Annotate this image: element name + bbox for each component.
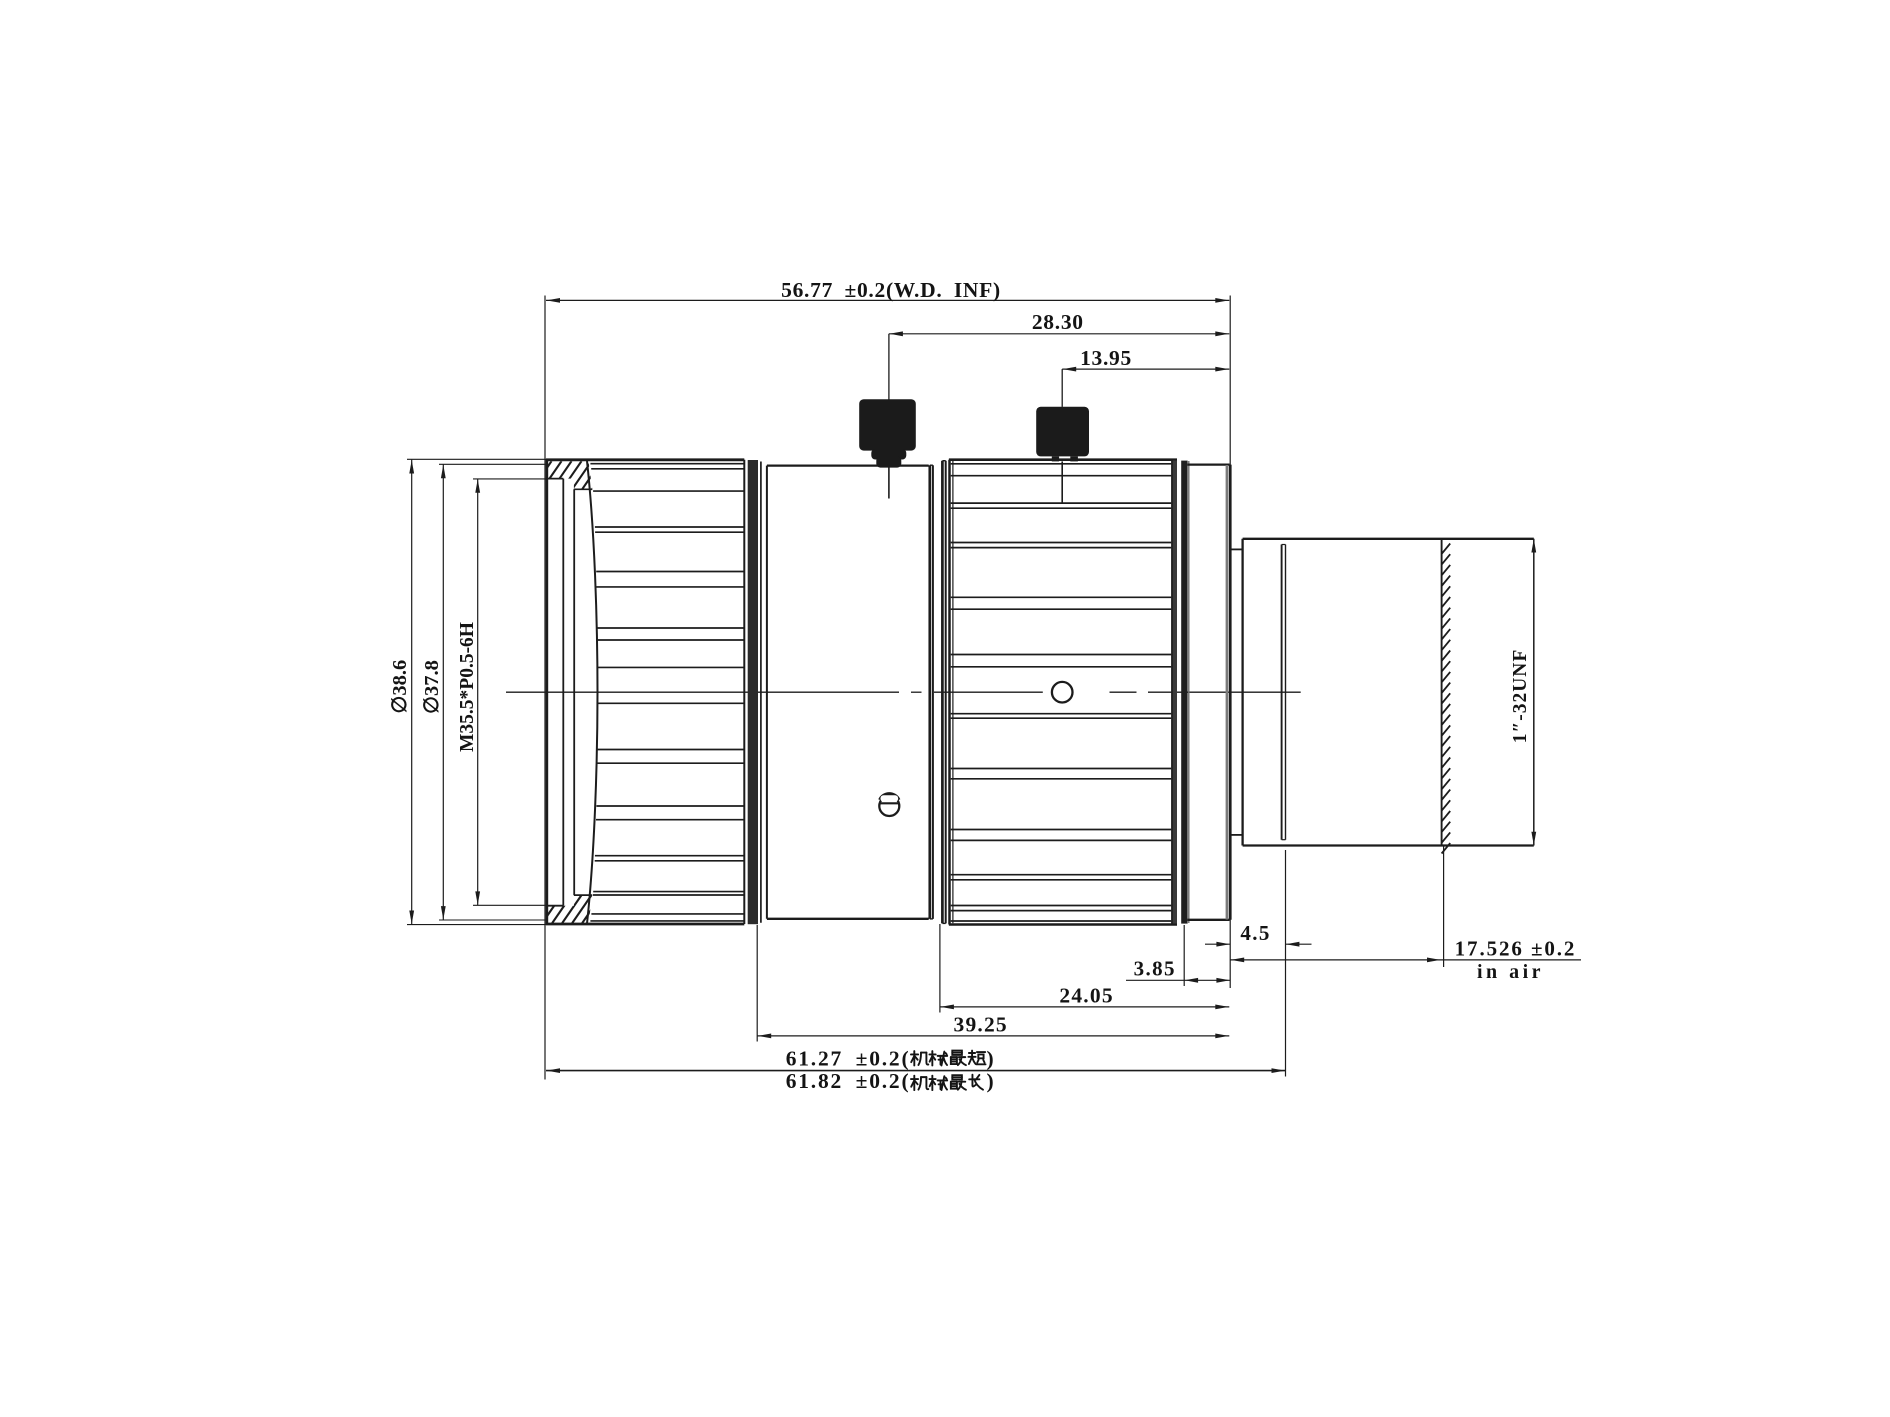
svg-text:∅38.6: ∅38.6: [389, 660, 411, 714]
svg-text:13.95: 13.95: [1080, 346, 1132, 370]
svg-text:3.85: 3.85: [1134, 957, 1176, 981]
svg-text:24.05: 24.05: [1059, 983, 1113, 1007]
svg-text:61.82 ±0.2(: 61.82 ±0.2(: [786, 1069, 911, 1093]
svg-text:4.5: 4.5: [1240, 921, 1270, 945]
svg-text:1″-32UNF: 1″-32UNF: [1510, 649, 1531, 744]
svg-text:): ): [987, 1047, 994, 1071]
svg-text:39.25: 39.25: [954, 1012, 1008, 1036]
svg-text:56.77 ±0.2(W.D. INF): 56.77 ±0.2(W.D. INF): [781, 278, 1001, 302]
svg-text:28.30: 28.30: [1032, 310, 1084, 334]
svg-text:17.526 ±0.2: 17.526 ±0.2: [1455, 937, 1577, 961]
svg-text:M35.5*P0.5-6H: M35.5*P0.5-6H: [457, 622, 478, 752]
svg-text:in air: in air: [1477, 961, 1544, 983]
svg-text:∅37.8: ∅37.8: [421, 660, 443, 714]
svg-text:61.27 ±0.2(: 61.27 ±0.2(: [786, 1047, 911, 1071]
svg-text:): ): [987, 1069, 994, 1093]
